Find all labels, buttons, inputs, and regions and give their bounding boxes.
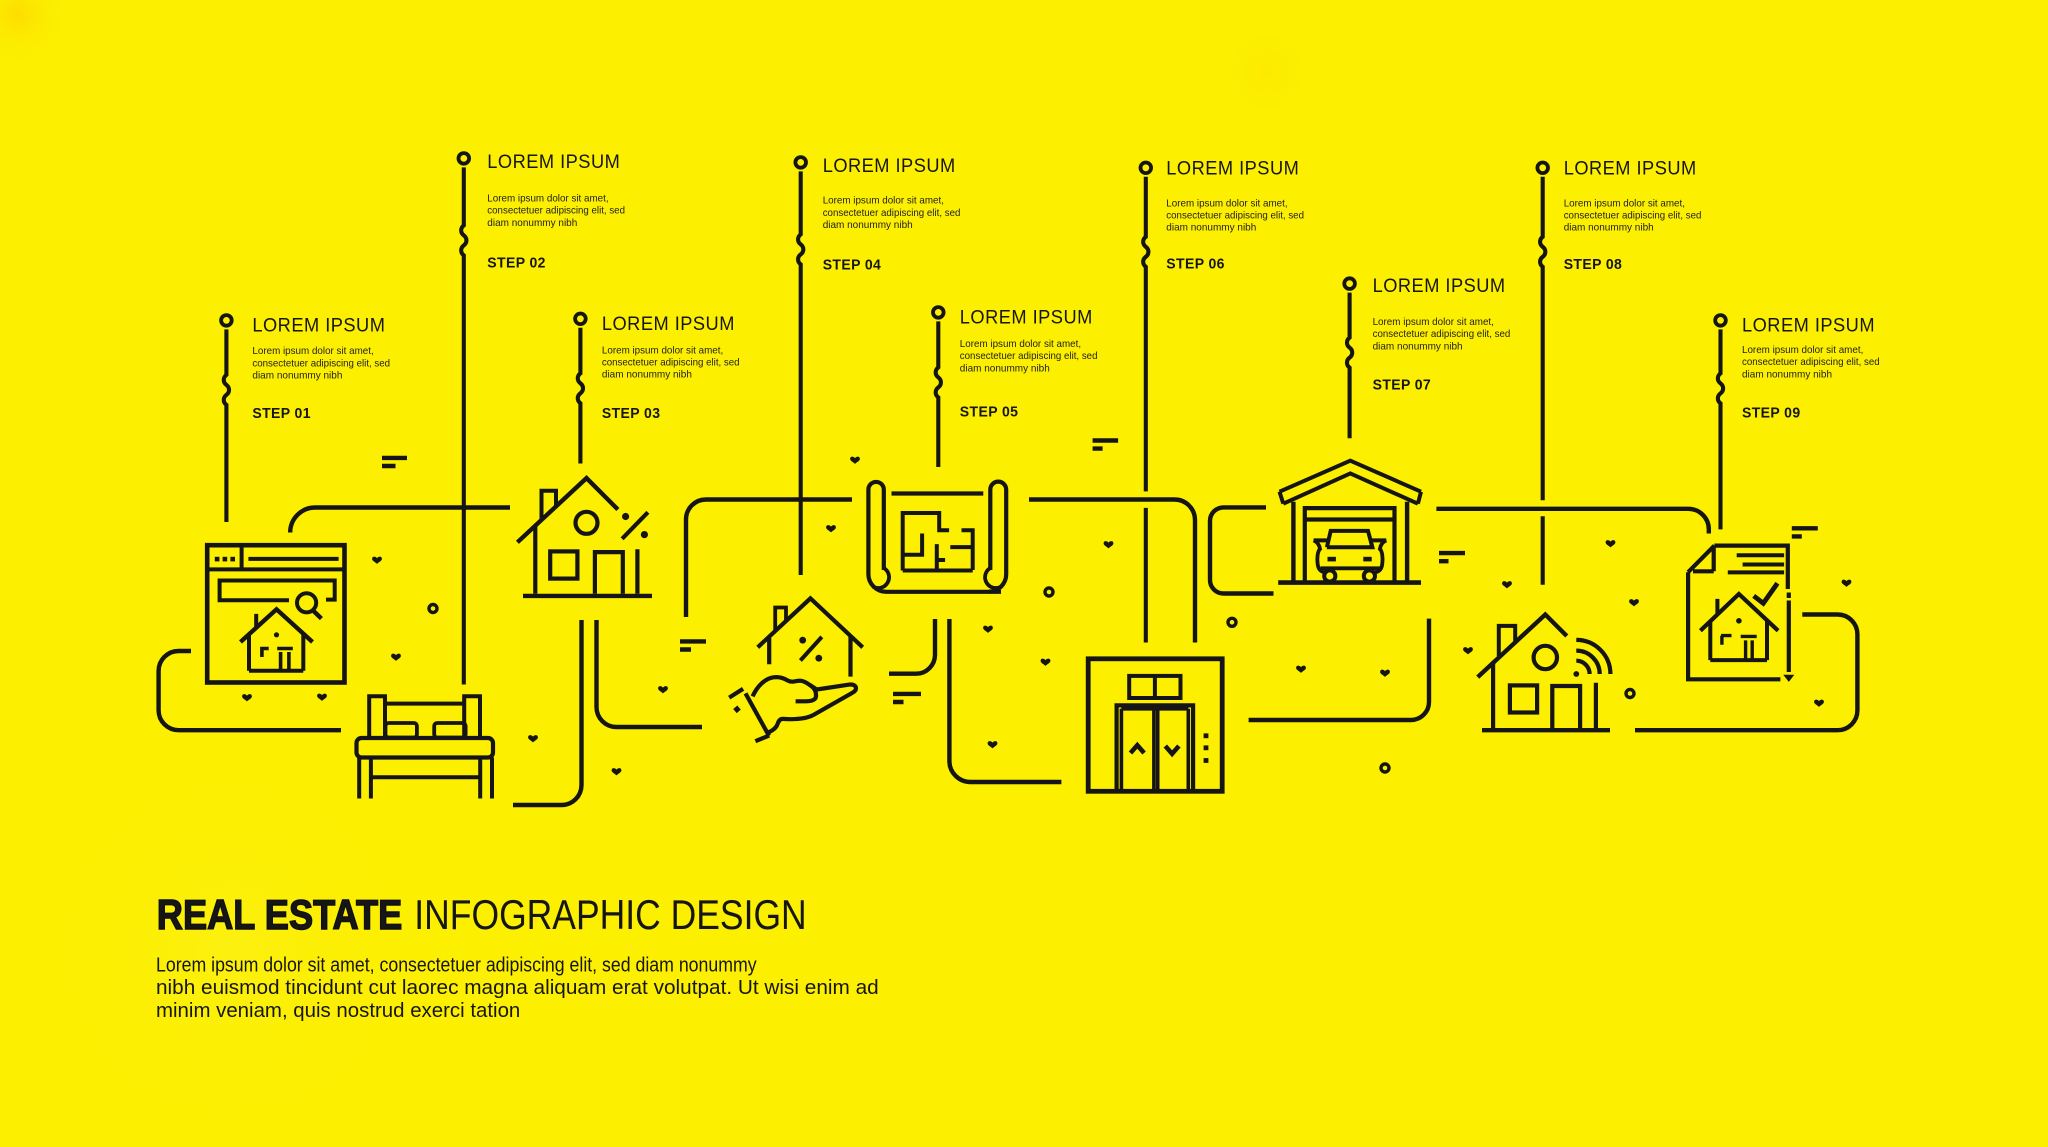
svg-text:Lorem ipsum dolor sit amet,: Lorem ipsum dolor sit amet, — [1564, 198, 1685, 209]
svg-text:consectetuer adipiscing elit,: consectetuer adipiscing elit, sed — [960, 351, 1098, 362]
svg-text:STEP 04: STEP 04 — [823, 258, 882, 274]
svg-text:consectetuer adipiscing elit,: consectetuer adipiscing elit, sed — [823, 208, 961, 219]
svg-text:Lorem ipsum dolor sit amet,: Lorem ipsum dolor sit amet, — [1742, 345, 1863, 356]
svg-text:minim veniam, quis nostrud exe: minim veniam, quis nostrud exerci tation — [156, 999, 520, 1022]
svg-text:Lorem ipsum dolor sit amet,: Lorem ipsum dolor sit amet, — [823, 196, 944, 207]
svg-text:Lorem ipsum dolor sit amet,: Lorem ipsum dolor sit amet, — [1166, 198, 1287, 209]
svg-text:consectetuer adipiscing elit,: consectetuer adipiscing elit, sed — [602, 358, 740, 369]
svg-text:Lorem ipsum dolor sit amet,: Lorem ipsum dolor sit amet, — [960, 339, 1081, 350]
svg-text:diam nonummy nibh: diam nonummy nibh — [1742, 369, 1832, 380]
svg-text:STEP 03: STEP 03 — [602, 406, 661, 422]
svg-text:Lorem ipsum dolor sit amet,: Lorem ipsum dolor sit amet, — [602, 345, 723, 356]
svg-text:STEP 01: STEP 01 — [252, 406, 311, 422]
svg-text:Lorem ipsum dolor sit amet,: Lorem ipsum dolor sit amet, — [487, 194, 608, 205]
svg-text:LOREM IPSUM: LOREM IPSUM — [1564, 159, 1697, 180]
svg-text:LOREM IPSUM: LOREM IPSUM — [487, 152, 620, 173]
svg-text:LOREM IPSUM: LOREM IPSUM — [823, 156, 956, 177]
svg-text:LOREM IPSUM: LOREM IPSUM — [960, 308, 1093, 329]
svg-text:Lorem ipsum dolor sit amet,: Lorem ipsum dolor sit amet, — [1373, 317, 1494, 328]
svg-text:diam nonummy nibh: diam nonummy nibh — [960, 363, 1050, 374]
svg-text:LOREM IPSUM: LOREM IPSUM — [602, 314, 735, 335]
svg-text:diam nonummy nibh: diam nonummy nibh — [823, 220, 913, 231]
svg-text:LOREM IPSUM: LOREM IPSUM — [1742, 316, 1875, 337]
svg-text:LOREM IPSUM: LOREM IPSUM — [252, 316, 385, 337]
svg-text:consectetuer adipiscing elit,: consectetuer adipiscing elit, sed — [252, 358, 390, 369]
svg-text:diam nonummy nibh: diam nonummy nibh — [602, 370, 692, 381]
svg-text:consectetuer adipiscing elit,: consectetuer adipiscing elit, sed — [1373, 329, 1511, 340]
svg-text:Lorem ipsum dolor sit amet, co: Lorem ipsum dolor sit amet, consectetuer… — [156, 953, 757, 976]
svg-text:INFOGRAPHIC DESIGN: INFOGRAPHIC DESIGN — [414, 891, 806, 938]
svg-text:diam nonummy nibh: diam nonummy nibh — [487, 218, 577, 229]
svg-text:STEP 08: STEP 08 — [1564, 257, 1623, 273]
svg-text:REAL ESTATE: REAL ESTATE — [157, 891, 402, 938]
svg-text:STEP 06: STEP 06 — [1166, 256, 1225, 272]
svg-text:STEP 09: STEP 09 — [1742, 406, 1801, 422]
svg-text:diam nonummy nibh: diam nonummy nibh — [252, 371, 342, 382]
svg-text:diam nonummy nibh: diam nonummy nibh — [1564, 223, 1654, 234]
svg-text:STEP 07: STEP 07 — [1373, 377, 1432, 393]
svg-text:consectetuer adipiscing elit,: consectetuer adipiscing elit, sed — [1742, 357, 1880, 368]
svg-text:consectetuer adipiscing elit,: consectetuer adipiscing elit, sed — [1564, 211, 1702, 222]
svg-text:consectetuer adipiscing elit,: consectetuer adipiscing elit, sed — [487, 206, 625, 217]
svg-text:STEP 05: STEP 05 — [960, 405, 1019, 421]
svg-text:LOREM IPSUM: LOREM IPSUM — [1373, 276, 1506, 297]
svg-text:diam nonummy nibh: diam nonummy nibh — [1166, 223, 1256, 234]
svg-text:LOREM IPSUM: LOREM IPSUM — [1166, 159, 1299, 180]
svg-text:consectetuer adipiscing elit,: consectetuer adipiscing elit, sed — [1166, 211, 1304, 222]
svg-text:diam nonummy nibh: diam nonummy nibh — [1373, 341, 1463, 352]
svg-text:nibh euismod tincidunt cut lao: nibh euismod tincidunt cut laorec magna … — [156, 976, 879, 999]
svg-text:Lorem ipsum dolor sit amet,: Lorem ipsum dolor sit amet, — [252, 346, 373, 357]
svg-text:STEP 02: STEP 02 — [487, 256, 546, 272]
